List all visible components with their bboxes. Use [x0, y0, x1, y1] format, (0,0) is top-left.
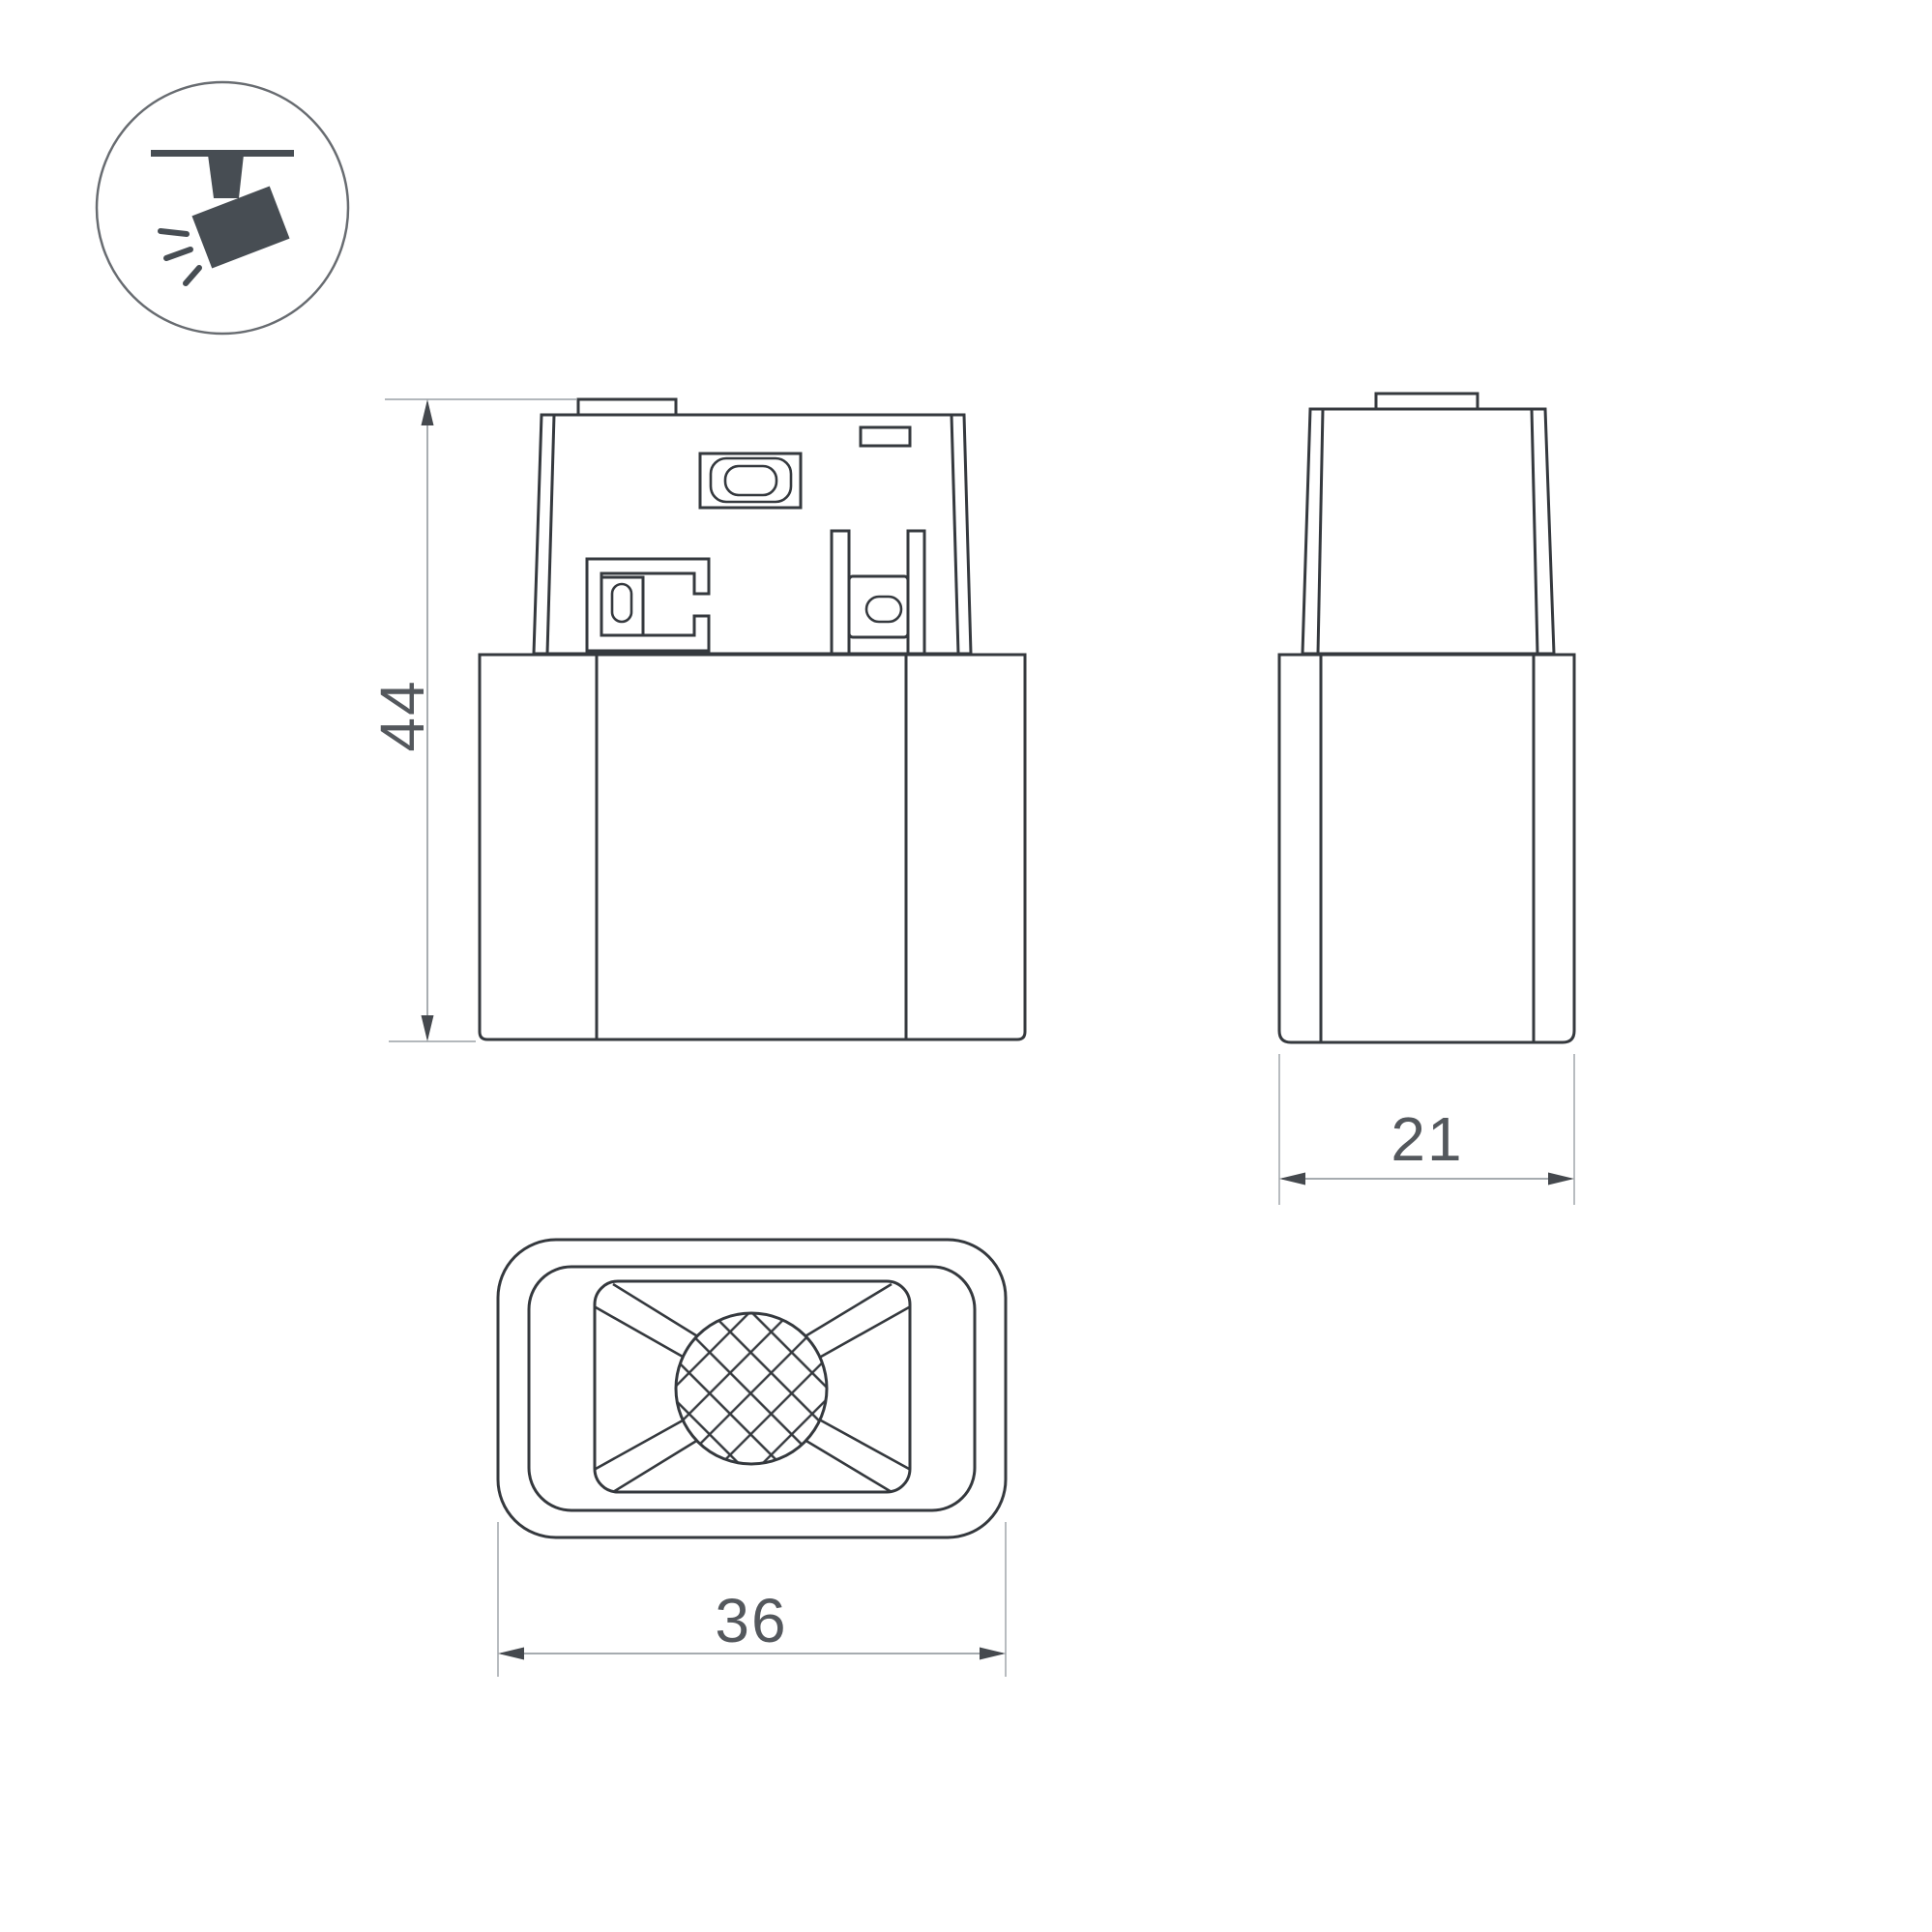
- side-top-tab: [1376, 394, 1478, 409]
- depth-dimension: 21: [1279, 1054, 1574, 1205]
- icon-stem: [208, 155, 244, 198]
- bottom-view: 36: [498, 1240, 1006, 1677]
- width-dimension-label: 36: [715, 1586, 787, 1655]
- technical-drawing-page: 44: [0, 0, 1932, 1932]
- width-dimension: 36: [498, 1522, 1006, 1677]
- side-housing-body: [1279, 655, 1574, 1042]
- arrowhead-right: [980, 1648, 1006, 1660]
- front-view: 44: [367, 399, 1025, 1041]
- arrowhead-down: [422, 1015, 434, 1041]
- depth-dimension-label: 21: [1390, 1104, 1463, 1174]
- front-body-outline: [480, 655, 1025, 1039]
- height-dimension-label: 44: [367, 679, 437, 751]
- dimension-drawing: 44: [0, 0, 1932, 1932]
- front-housing-body: [480, 655, 1025, 1039]
- front-top-tab: [578, 399, 676, 415]
- arrowhead-up: [422, 399, 434, 425]
- arrowhead-left: [498, 1648, 524, 1660]
- front-connector-head: [534, 399, 971, 654]
- lens-crosshatch-circle: [676, 1313, 827, 1464]
- side-head-outline: [1303, 409, 1554, 654]
- side-body-outline: [1279, 655, 1574, 1042]
- side-connector-head: [1303, 394, 1554, 654]
- bottom-led-lens: [676, 1313, 827, 1464]
- arrowhead-left: [1279, 1173, 1305, 1186]
- side-view: 21: [1279, 394, 1574, 1205]
- track-spotlight-icon: [97, 82, 348, 334]
- arrowhead-right: [1548, 1173, 1574, 1186]
